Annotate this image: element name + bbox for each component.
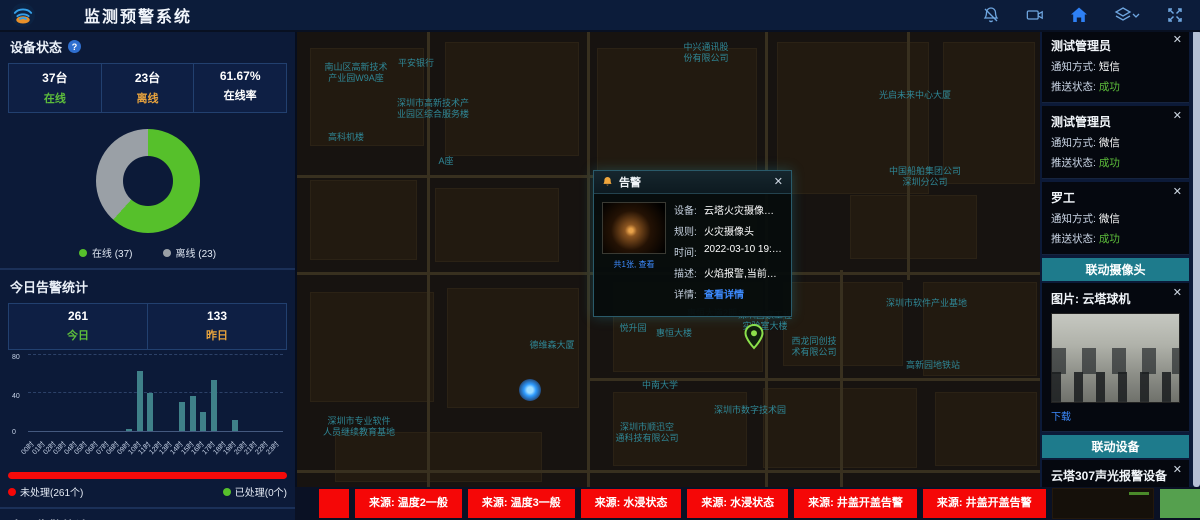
map-label: 南山区高新技术 产业园W9A座: [313, 62, 399, 84]
online-rate-cell: 61.67% 在线率: [194, 64, 286, 112]
header-actions: [982, 0, 1184, 30]
map-label: 德维森大厦: [523, 340, 581, 351]
today-count-cell: 261 今日: [9, 304, 148, 349]
map-label: 西龙同创技 术有限公司: [787, 336, 841, 358]
monitoring-dashboard: 监测预警系统 设备状态 ? 37台: [0, 0, 1200, 520]
bar: [126, 429, 132, 431]
yesterday-count-cell: 133 昨日: [148, 304, 286, 349]
alert-source-item[interactable]: 来源: 井盖开盖告警: [794, 489, 917, 518]
bar: [232, 420, 238, 431]
alarm-rule-value: 火灾摄像头: [704, 223, 754, 238]
alarm-pin-icon[interactable]: [743, 324, 765, 350]
alert-source-item[interactable]: 来源: 温度3一般: [468, 489, 575, 518]
close-icon[interactable]: ✕: [1173, 288, 1182, 299]
map-label: 深圳市高新技术产 业园区综合服务楼: [387, 98, 479, 120]
fullscreen-icon[interactable]: [1166, 6, 1184, 24]
close-icon[interactable]: ✕: [1173, 187, 1182, 198]
layers-icon[interactable]: [1114, 6, 1140, 24]
video-camera-icon[interactable]: [1026, 6, 1044, 24]
bar: [137, 371, 143, 431]
download-link[interactable]: 下载: [1051, 408, 1180, 423]
alarm-desc-value: 火焰报警,当前触发值为...: [704, 265, 783, 280]
map-label: 中南大学: [637, 380, 683, 391]
today-alarms-table: 261 今日 133 昨日: [8, 303, 287, 350]
processed-legend: 未处理(261个) 已处理(0个): [0, 484, 295, 499]
bell-off-icon[interactable]: [982, 6, 1000, 24]
offline-count-cell: 23台 离线: [102, 64, 195, 112]
today-alarms-section-title: 今日告警统计: [0, 268, 295, 301]
linked-device-card: ✕ 云塔307声光报警设备 设备编码:ffffff100001ab6c 调用服务…: [1042, 460, 1189, 487]
map-label: 惠恒大楼: [651, 328, 697, 339]
help-icon[interactable]: ?: [68, 40, 81, 53]
bar-chart-x-axis: 00时01时02时03时04时05时06时07时08时09时10时11时12时1…: [28, 434, 283, 460]
right-notification-panel: ✕ 测试管理员 通知方式:短信 推送状态:成功 ✕ 测试管理员 通知方式:微信 …: [1040, 30, 1200, 487]
map-label: 平安银行: [391, 58, 441, 69]
device-location-dot[interactable]: [519, 379, 541, 401]
bar: [190, 396, 196, 431]
map-label: 悦升园: [615, 323, 651, 334]
linked-camera-card: ✕ 图片: 云塔球机 下载: [1042, 283, 1189, 432]
bottom-alert-ticker: 来源: 温度2一般来源: 温度3一般来源: 水浸状态来源: 水浸状态来源: 井盖…: [295, 487, 1200, 520]
alert-thumbnail-green[interactable]: [1160, 489, 1200, 518]
map-label: 中国船舶集团公司 深圳分公司: [883, 166, 967, 188]
bar: [179, 402, 185, 431]
map-label: 深圳市专业软件 人员继续教育基地: [317, 416, 401, 438]
panel-scrollbar[interactable]: [1193, 30, 1200, 487]
alarm-snapshot-block: 共1张, 查看: [602, 202, 666, 307]
device-status-table: 37台 在线 23台 离线 61.67% 在线率: [8, 63, 287, 113]
map-label: 高新园地铁站: [901, 360, 965, 371]
unprocessed-progress-bar: [8, 472, 287, 479]
notification-card: ✕ 测试管理员 通知方式:微信 推送状态:成功: [1042, 106, 1189, 179]
alert-source-item[interactable]: 来源: 温度2一般: [355, 489, 462, 518]
alarm-snapshot-caption[interactable]: 共1张, 查看: [602, 259, 666, 270]
online-count-cell: 37台 在线: [9, 64, 102, 112]
alert-source-item[interactable]: 来源: 水浸状态: [687, 489, 788, 518]
bar: [200, 412, 206, 431]
notification-card: ✕ 测试管理员 通知方式:短信 推送状态:成功: [1042, 30, 1189, 103]
left-stats-panel: 设备状态 ? 37台 在线 23台 离线 61.67% 在线率 在线 (37) …: [0, 30, 297, 520]
close-icon[interactable]: ✕: [1173, 465, 1182, 476]
alert-source-item[interactable]: 来源: 井盖开盖告警: [923, 489, 1046, 518]
alarm-popup-title: 告警: [619, 174, 768, 190]
alert-source-item[interactable]: 来源: 水浸状态: [581, 489, 682, 518]
alarm-popup-header: 告警 ✕: [594, 171, 791, 194]
alert-source-item-partial[interactable]: [319, 489, 349, 518]
map-label: 中兴通讯股 份有限公司: [677, 42, 735, 64]
linked-camera-header: 联动摄像头: [1042, 258, 1189, 281]
bar: [211, 380, 217, 431]
alarm-bell-icon: [602, 176, 613, 188]
map-label: 高科机楼: [321, 132, 371, 143]
month-alarms-section-title: 本月告警统计: [0, 507, 295, 520]
map-label: 光启未来中心大厦: [873, 90, 957, 101]
app-logo-icon: [10, 2, 36, 28]
notification-card: ✕ 罗工 通知方式:微信 推送状态:成功: [1042, 182, 1189, 255]
bar-chart-plot-area: [28, 358, 283, 432]
alarm-device-value: 云塔火灾摄像头202: [704, 202, 783, 217]
home-icon[interactable]: [1070, 6, 1088, 24]
map-label: 深圳市顺迅空 通科技有限公司: [611, 422, 683, 444]
map-label: 深圳市软件产业基地: [879, 298, 974, 309]
view-details-link[interactable]: 查看详情: [704, 286, 744, 301]
alarm-time-value: 2022-03-10 19:13:07: [704, 244, 783, 259]
donut-legend: 在线 (37) 离线 (23): [0, 245, 295, 260]
device-status-donut-chart: [96, 129, 200, 233]
alarm-popup-body: 共1张, 查看 设备:云塔火灾摄像头202 规则:火灾摄像头 时间:2022-0…: [594, 194, 791, 307]
bar: [147, 393, 153, 431]
device-status-section-title: 设备状态 ?: [0, 30, 295, 61]
page-title: 监测预警系统: [84, 3, 192, 27]
close-icon[interactable]: ✕: [774, 177, 783, 188]
alarm-detail-rows: 设备:云塔火灾摄像头202 规则:火灾摄像头 时间:2022-03-10 19:…: [674, 202, 783, 307]
map-label: A座: [431, 156, 461, 167]
camera-snapshot-image[interactable]: [1051, 313, 1180, 403]
app-header: 监测预警系统: [0, 0, 1200, 32]
close-icon[interactable]: ✕: [1173, 35, 1182, 46]
alarm-popup: 告警 ✕ 共1张, 查看 设备:云塔火灾摄像头202 规则:火灾摄像头 时间:2…: [593, 170, 792, 317]
alert-thumbnail-image[interactable]: [1052, 488, 1154, 519]
hourly-alarm-bar-chart: 80 40 0 00时01时02时03时04时05时06时07时08时09时10…: [8, 354, 287, 460]
map-label: 深圳市数字技术园: [707, 405, 793, 416]
linked-devices-header: 联动设备: [1042, 435, 1189, 458]
alarm-snapshot-image[interactable]: [602, 202, 666, 254]
close-icon[interactable]: ✕: [1173, 111, 1182, 122]
